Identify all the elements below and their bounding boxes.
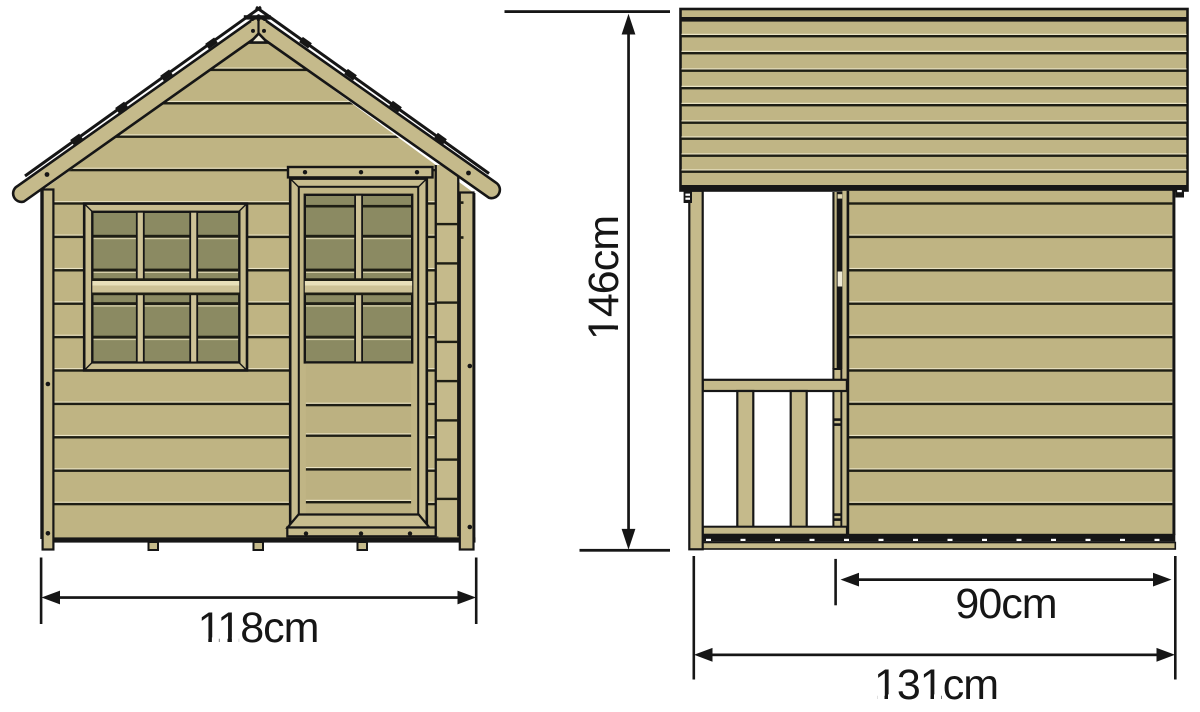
- svg-text:146cm: 146cm: [580, 216, 628, 340]
- svg-text:118cm: 118cm: [198, 604, 319, 652]
- svg-text:131cm: 131cm: [874, 661, 998, 709]
- svg-text:90cm: 90cm: [955, 580, 1056, 628]
